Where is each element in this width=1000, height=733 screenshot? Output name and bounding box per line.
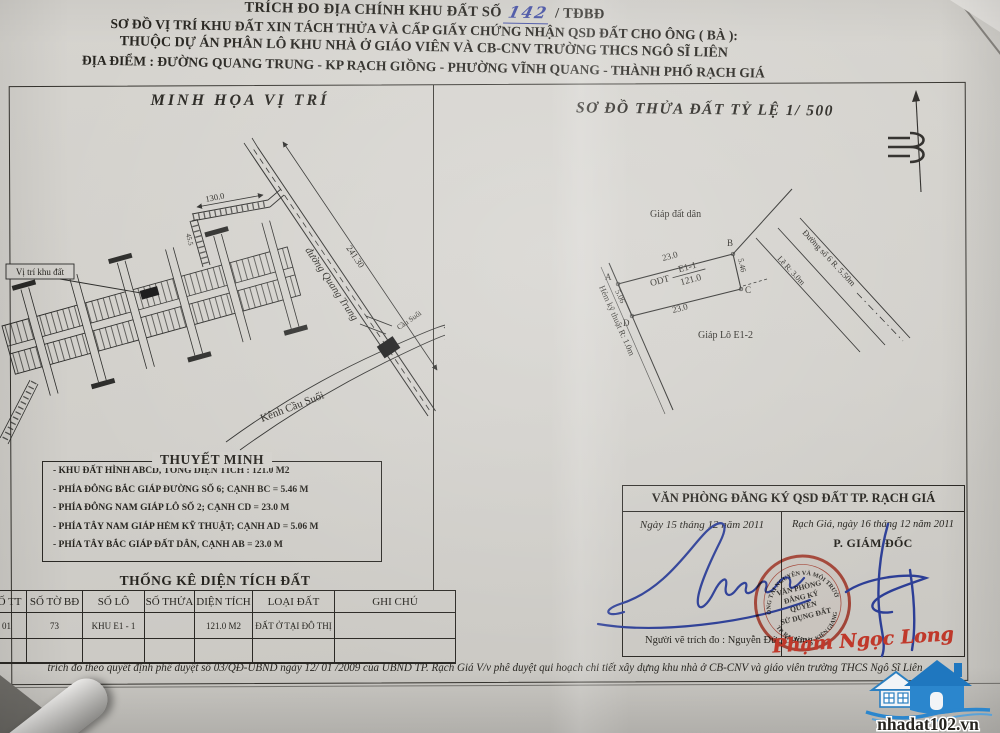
table-cell: [83, 639, 145, 663]
scanned-cadastral-document: TRÍCH ĐO ĐỊA CHÍNH KHU ĐẤT SỐ 142 / TĐBĐ…: [0, 0, 1000, 733]
note-item: - PHÍA ĐÔNG NAM GIÁP LÔ SỐ 2; CẠNH CD = …: [43, 499, 381, 518]
note-item: - PHÍA ĐÔNG BẮC GIÁP ĐƯỜNG SỐ 6; CẠNH BC…: [43, 481, 381, 500]
notes-box: THUYẾT MINH - KHU ĐẤT HÌNH ABCD, TỔNG DI…: [42, 461, 382, 562]
parcel-diagram-drawing: A B C D 23.0 23.0 5.46 5.06 ODT E1-1 121…: [555, 175, 985, 445]
corner-a-label: A: [605, 272, 612, 282]
side-bottom-dimension: 23.0: [671, 301, 689, 315]
table-cell: [335, 639, 455, 663]
area-table: SỐ TT SỐ TỜ BĐ SỐ LÔ SỐ THỬA DIỆN TÍCH L…: [0, 590, 456, 664]
footer-note: trích đo theo quyết định phê duyệt số 03…: [37, 662, 934, 674]
quang-trung-road: [244, 138, 436, 416]
handwritten-doc-number: 142: [503, 4, 553, 24]
table-cell: 01: [0, 613, 27, 639]
cross-streets: [12, 213, 308, 403]
connector-side-label: 45.5: [184, 233, 195, 247]
side-top-dimension: 23.0: [661, 249, 679, 263]
table-cell: [335, 613, 455, 639]
table-cell: 121.0 M2: [195, 613, 253, 639]
side-right-dimension: 5.46: [736, 257, 748, 273]
table-cell: [145, 639, 195, 663]
table-header-cell: LOẠI ĐẤT: [253, 591, 335, 613]
registry-office-title: VĂN PHÒNG ĐĂNG KÝ QSD ĐẤT TP. RẠCH GIÁ: [623, 486, 964, 512]
connector-length-label: 130.0: [204, 190, 225, 203]
table-cell: 73: [27, 613, 83, 639]
location-map-drawing: 130.0 45.5 241.30 đường Quang Trung Kênh…: [0, 118, 445, 463]
canal-name-label: Kênh Cầu Suối: [259, 390, 326, 425]
header-line1-suffix: / TĐBĐ: [555, 6, 605, 23]
land-use-code: ODT: [649, 274, 671, 289]
sidewalk-label: Lề R: 3.0m: [776, 254, 808, 287]
table-header-cell: SỐ LÔ: [83, 591, 145, 613]
adjacent-bottom-label: Giáp Lô E1-2: [698, 330, 753, 341]
watermark-text: nhadat102.vn: [877, 714, 979, 732]
table-cell: [195, 639, 253, 663]
notes-title: THUYẾT MINH: [152, 452, 272, 468]
road-lines: [733, 189, 910, 352]
subdivision-band: [0, 212, 310, 408]
adjacent-top-label: Giáp đất dân: [650, 209, 701, 220]
table-cell: ĐẤT Ở TẠI ĐÔ THỊ: [253, 613, 335, 639]
right-date: Rạch Giá, ngày 16 tháng 12 năm 2011: [782, 519, 964, 530]
table-header-cell: SỐ TỜ BĐ: [27, 591, 83, 613]
corner-b-label: B: [727, 238, 733, 248]
note-item: - PHÍA TÂY BẮC GIÁP ĐẤT DÂN, CẠNH AB = 2…: [43, 536, 381, 555]
parcel-area-label: ODT E1-1 121.0: [648, 259, 709, 296]
lot-code: E1-1: [677, 261, 698, 276]
document-header: TRÍCH ĐO ĐỊA CHÍNH KHU ĐẤT SỐ 142 / TĐBĐ…: [27, 0, 820, 84]
area-table-title: THỐNG KÊ DIỆN TÍCH ĐẤT: [40, 573, 390, 589]
table-cell: [145, 613, 195, 639]
location-map-title: MINH HỌA VỊ TRÍ: [55, 92, 425, 110]
corner-c-label: C: [745, 285, 751, 295]
table-cell: [27, 639, 83, 663]
table-header-cell: GHI CHÚ: [335, 591, 455, 613]
table-cell: [0, 639, 27, 663]
north-arrow-head: [912, 90, 920, 102]
note-item: - PHÍA TÂY NAM GIÁP HẺM KỸ THUẬT; CẠNH A…: [43, 518, 381, 537]
paper-sheet: TRÍCH ĐO ĐỊA CHÍNH KHU ĐẤT SỐ 142 / TĐBĐ…: [0, 0, 1000, 733]
canal-lines: [226, 325, 445, 450]
table-header-cell: SỐ THỬA: [145, 591, 195, 613]
lower-left-road: [0, 380, 38, 444]
table-header-cell: SỐ TT: [0, 591, 27, 613]
table-cell: [253, 639, 335, 663]
left-date: Ngày 15 tháng 12 năm 2011: [623, 519, 781, 531]
watermark-logo: nhadat102.vn: [858, 650, 996, 732]
road-label: Đường số 6 R. 5.50m: [801, 228, 859, 289]
table-cell: KHU E1 - 1: [83, 613, 145, 639]
site-label-text: Vị trí khu đất: [16, 267, 65, 277]
paper-fold-corner: [950, 0, 1000, 32]
table-header-cell: DIỆN TÍCH: [195, 591, 253, 613]
road-length-label: 241.30: [344, 244, 366, 271]
bridge-square: [377, 336, 401, 358]
